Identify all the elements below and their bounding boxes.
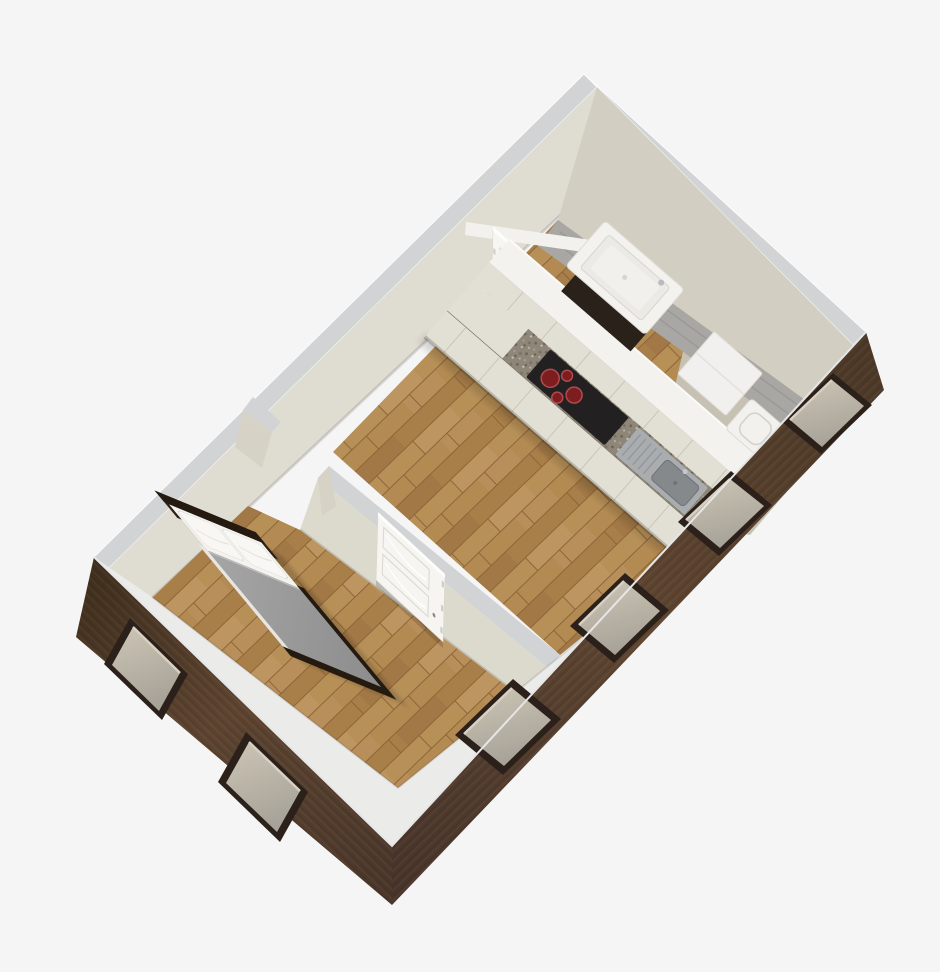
floorplan-render: 3D isometric floor-plan rendering of a o… (0, 0, 940, 972)
floorplan-svg: 3D isometric floor-plan rendering of a o… (0, 0, 940, 972)
